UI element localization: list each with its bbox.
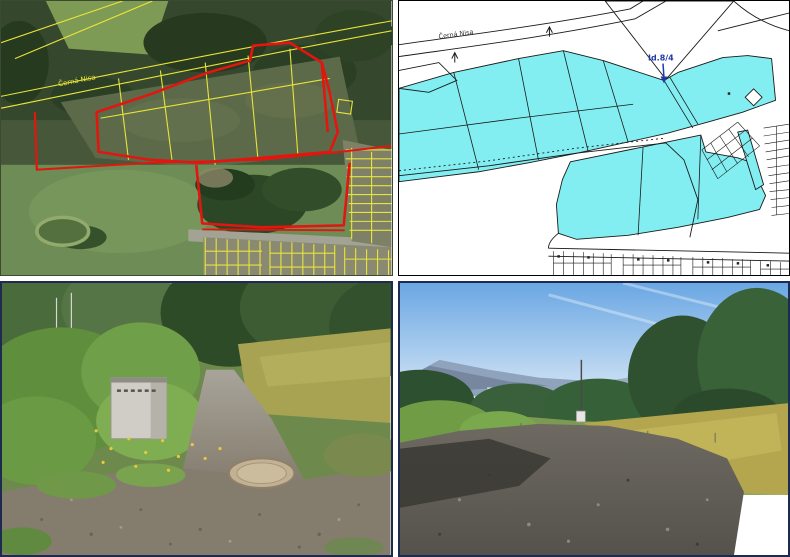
panel-photo-road (398, 281, 790, 557)
aerial-image: Černá Nisa (1, 1, 392, 275)
panel-photo-path (0, 281, 393, 557)
photo-road-image (400, 283, 789, 555)
panel-aerial: Černá Nisa (0, 0, 393, 276)
parcel-callout-label: Id.8/4 (648, 54, 674, 63)
utility-cabinet (111, 378, 166, 439)
collage: Černá Nisa (0, 0, 790, 557)
cadastral-map-image: Černá Nisa Id.8/4 (399, 1, 790, 275)
manhole-cover (229, 458, 294, 488)
panel-cadastre: Černá Nisa Id.8/4 (398, 0, 790, 276)
photo-path-image (2, 283, 391, 555)
ring-feature (37, 217, 89, 245)
